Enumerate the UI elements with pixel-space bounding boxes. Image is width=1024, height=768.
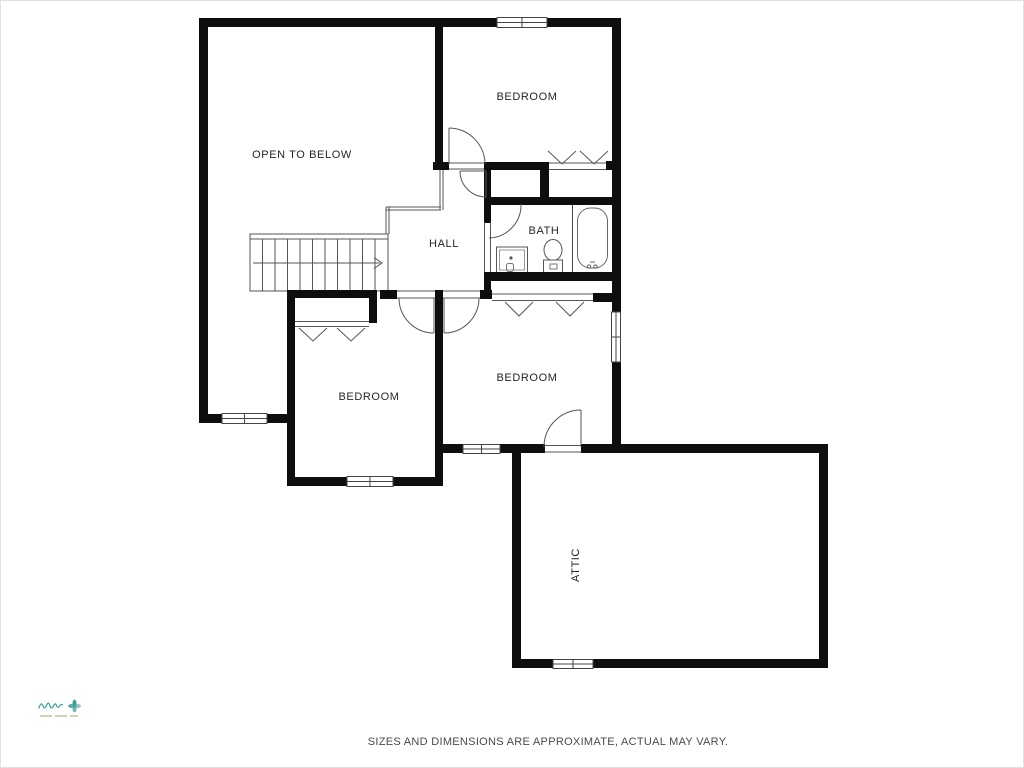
window-attic bbox=[553, 660, 593, 669]
wall-left-exterior bbox=[199, 18, 208, 423]
closet-chevron-icon bbox=[548, 151, 576, 164]
bath-fixtures bbox=[497, 204, 613, 274]
wall-closet1-end-block bbox=[606, 161, 616, 170]
walls bbox=[199, 18, 828, 668]
wall-bedroom1-bottom-b bbox=[484, 162, 548, 170]
door-upper-bedroom bbox=[449, 128, 485, 164]
window-top-bedroom bbox=[497, 18, 547, 28]
wall-bedroom2-bottom-b bbox=[393, 477, 443, 486]
wall-bath-top bbox=[484, 197, 621, 205]
wall-bedroom2-bottom-a bbox=[287, 477, 347, 486]
toilet-icon bbox=[544, 240, 563, 273]
wall-hall-bottom-right bbox=[480, 290, 492, 299]
closet-chevron-icon bbox=[337, 328, 365, 341]
wall-inter-bedroom bbox=[435, 290, 443, 485]
label-open-to-below: OPEN TO BELOW bbox=[252, 149, 352, 161]
closet-upper-bedroom bbox=[548, 151, 608, 170]
wall-bedroom2-closet-stub bbox=[369, 290, 377, 323]
staircase-icon bbox=[250, 234, 388, 291]
closet-chevron-icon bbox=[580, 151, 608, 164]
wall-top-right bbox=[547, 18, 621, 27]
wall-attic-top-c bbox=[581, 444, 828, 453]
floor-plan-svg: OPEN TO BELOW BEDROOM HALL BATH BEDROOM … bbox=[0, 0, 1024, 768]
closet-chevron-icon bbox=[505, 302, 533, 316]
wall-closet1-divider bbox=[540, 162, 549, 203]
closet-chevron-icon bbox=[299, 328, 327, 341]
window-right-bedroom bbox=[612, 312, 621, 362]
wall-hall-bottom-stub bbox=[380, 290, 397, 299]
brand-logo bbox=[36, 696, 86, 726]
door-attic bbox=[544, 410, 581, 447]
wall-bedroom2-closet-top bbox=[287, 290, 377, 298]
label-bath: BATH bbox=[529, 225, 560, 237]
wall-bedroom2-left bbox=[287, 290, 295, 485]
pinwheel-flower-icon bbox=[68, 700, 81, 713]
disclaimer-text: SIZES AND DIMENSIONS ARE APPROXIMATE, AC… bbox=[368, 736, 729, 748]
wall-open-bedroom-divider bbox=[435, 18, 443, 164]
wall-bath-bottom bbox=[484, 272, 621, 281]
closet-chevron-icon bbox=[556, 302, 584, 316]
window-middle-bedroom bbox=[463, 445, 500, 454]
closet-middle-bedroom bbox=[492, 294, 593, 316]
wall-closet2-end-stub bbox=[593, 293, 612, 302]
wall-attic-top-a bbox=[435, 444, 463, 453]
wall-top-left bbox=[199, 18, 497, 27]
label-bedroom-upper: BEDROOM bbox=[496, 91, 557, 103]
wall-bedroom1-bottom-a bbox=[433, 162, 449, 170]
wall-right-exterior-lower bbox=[612, 362, 621, 453]
landing-rail-lines bbox=[386, 170, 443, 234]
wall-attic-right bbox=[819, 444, 828, 668]
closet-left-bedroom bbox=[295, 322, 369, 342]
wall-attic-top-b bbox=[500, 444, 545, 453]
door-left-bedroom bbox=[399, 298, 434, 333]
label-attic: ATTIC bbox=[570, 548, 582, 582]
label-bedroom-lower-left: BEDROOM bbox=[338, 391, 399, 403]
windows bbox=[222, 18, 621, 669]
bathtub-icon bbox=[573, 204, 613, 273]
door-hall-top bbox=[460, 171, 486, 197]
wall-attic-bottom-b bbox=[593, 659, 828, 668]
label-hall: HALL bbox=[429, 238, 459, 250]
wall-open-below-bottom-a bbox=[199, 414, 222, 423]
brand-script-squiggle bbox=[39, 703, 63, 708]
wall-attic-left bbox=[512, 447, 521, 668]
sink-vanity-icon bbox=[497, 247, 528, 273]
wall-attic-bottom-a bbox=[512, 659, 553, 668]
window-left-bedroom bbox=[347, 477, 393, 487]
door-bath bbox=[489, 204, 521, 238]
window-open-below bbox=[222, 414, 267, 424]
door-middle-bedroom bbox=[444, 298, 479, 333]
label-bedroom-lower-middle: BEDROOM bbox=[496, 372, 557, 384]
floor-plan-page: OPEN TO BELOW BEDROOM HALL BATH BEDROOM … bbox=[0, 0, 1024, 768]
